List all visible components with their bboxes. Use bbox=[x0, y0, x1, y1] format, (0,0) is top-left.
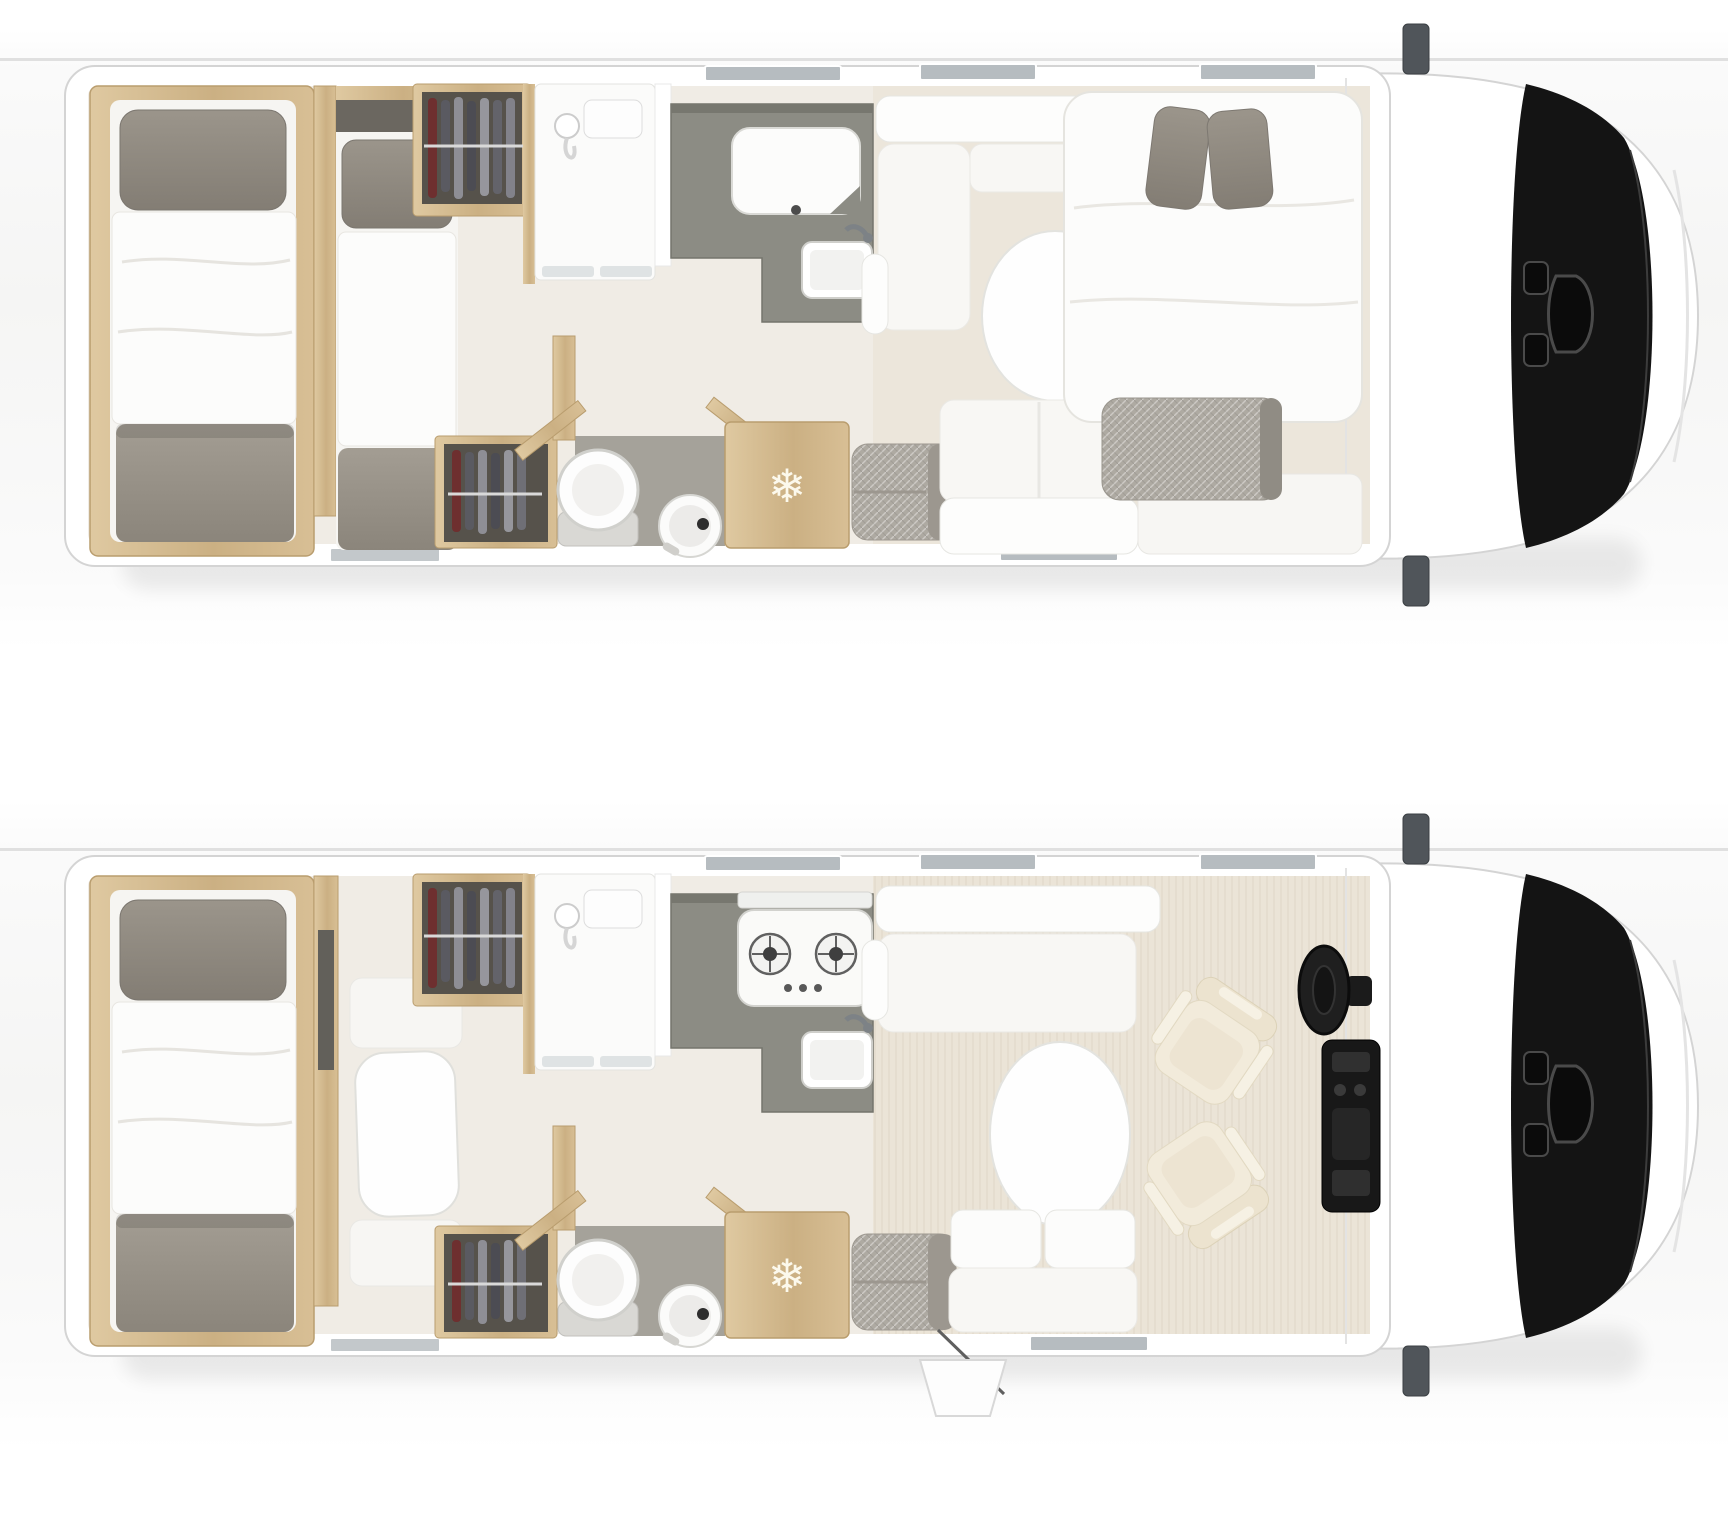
entrance-seat bbox=[852, 1234, 956, 1330]
worktop-cover bbox=[732, 128, 860, 214]
sofa-seat bbox=[949, 1268, 1137, 1332]
washbasin-tap bbox=[697, 1308, 709, 1320]
pillow bbox=[120, 900, 286, 1000]
pillow-left bbox=[1144, 105, 1212, 211]
floorplan-upper: ❄ bbox=[62, 0, 1702, 650]
shower-door-right bbox=[600, 1056, 652, 1067]
foot-blanket-fold bbox=[116, 424, 294, 438]
shower-head-icon bbox=[555, 904, 579, 928]
shower-door-left bbox=[542, 1056, 594, 1067]
wardrobe-top bbox=[413, 874, 531, 1006]
foot-blanket-fold bbox=[116, 1214, 294, 1228]
front-window-top bbox=[1200, 854, 1316, 870]
kitchen-backsplash bbox=[671, 104, 873, 113]
shower-door-left bbox=[542, 266, 594, 277]
toilet-seat bbox=[572, 1254, 624, 1306]
partition-mirror-panel bbox=[318, 930, 334, 1070]
bench-seat bbox=[878, 934, 1136, 1032]
hob-burner-left bbox=[750, 934, 790, 974]
bench-armrest bbox=[862, 254, 888, 334]
shower-wall-white bbox=[655, 84, 671, 266]
sofa-back-cushion-left bbox=[951, 1210, 1041, 1268]
drop-down-bed bbox=[1064, 92, 1362, 554]
kitchen-faucet-base bbox=[863, 1023, 873, 1033]
shower-door-right bbox=[600, 266, 652, 277]
worktop-hinge bbox=[791, 205, 801, 215]
duvet bbox=[112, 1002, 296, 1214]
side-mirror-bottom bbox=[1403, 556, 1429, 606]
bench-back bbox=[876, 886, 1160, 932]
clothes-items bbox=[428, 887, 515, 989]
hob-lid bbox=[738, 892, 872, 908]
shower-basin bbox=[584, 890, 642, 928]
pillow bbox=[120, 110, 286, 210]
floorplan-lower: ❄ bbox=[62, 790, 1702, 1450]
shower-room bbox=[523, 84, 671, 284]
kitchen-sink-bowl bbox=[810, 250, 864, 290]
dinette-table bbox=[354, 1050, 460, 1217]
lounge-window-top bbox=[920, 64, 1036, 80]
wardrobe-top bbox=[413, 84, 531, 216]
sofa-back bbox=[940, 498, 1138, 554]
wardrobe-bottom bbox=[435, 1226, 557, 1338]
fridge: ❄ bbox=[725, 422, 849, 548]
bench-seat-left bbox=[878, 144, 970, 330]
foot-blanket-roll bbox=[1260, 398, 1282, 500]
shower-wall-wood bbox=[523, 874, 535, 1074]
floorplan-lower-svg: ❄ bbox=[62, 790, 1702, 1450]
rear-bed bbox=[90, 876, 314, 1346]
kitchen-window bbox=[705, 856, 841, 871]
dashboard bbox=[1322, 1040, 1380, 1212]
toilet-seat bbox=[572, 464, 624, 516]
foot-blanket bbox=[116, 1214, 294, 1332]
side-mirror-top bbox=[1403, 24, 1429, 74]
foot-blanket bbox=[1102, 398, 1280, 500]
front-window-top bbox=[1200, 64, 1316, 80]
steering-wheel-hub bbox=[1313, 966, 1335, 1014]
kitchen-window bbox=[705, 66, 841, 81]
fridge: ❄ bbox=[725, 1212, 849, 1338]
hob-burner-right bbox=[816, 934, 856, 974]
hob-knobs bbox=[784, 984, 822, 992]
foot-blanket bbox=[116, 424, 294, 542]
duvet bbox=[112, 212, 296, 424]
clothes-items bbox=[428, 97, 515, 199]
pillow-right bbox=[1206, 108, 1274, 211]
shower-head-icon bbox=[555, 114, 579, 138]
bed-partition-wood bbox=[314, 86, 336, 516]
rear-window-bottom bbox=[330, 1338, 440, 1352]
snowflake-icon: ❄ bbox=[768, 459, 807, 513]
side-mirror-top bbox=[1403, 814, 1429, 864]
rear-bed-left bbox=[90, 86, 314, 556]
kitchen-faucet-base bbox=[863, 233, 873, 243]
shower-wall-wood bbox=[523, 84, 535, 284]
snowflake-icon: ❄ bbox=[768, 1249, 807, 1303]
oval-table bbox=[990, 1042, 1130, 1226]
floorplans-canvas: ❄ bbox=[0, 0, 1728, 1520]
entry-step bbox=[920, 1360, 1006, 1416]
shower-basin bbox=[584, 100, 642, 138]
kitchen-sink-bowl bbox=[810, 1040, 864, 1080]
duvet bbox=[338, 232, 456, 446]
lounge-window-top bbox=[920, 854, 1036, 870]
side-mirror-bottom bbox=[1403, 1346, 1429, 1396]
lounge-window-bottom bbox=[1030, 1336, 1148, 1351]
shower-wall-white bbox=[655, 874, 671, 1056]
rear-window-bottom bbox=[330, 548, 440, 562]
floorplan-upper-svg: ❄ bbox=[62, 0, 1702, 650]
wardrobe-bottom bbox=[435, 436, 557, 548]
washbasin-tap bbox=[697, 518, 709, 530]
bench-armrest bbox=[862, 940, 888, 1020]
shower-room bbox=[523, 874, 671, 1074]
sofa-back-cushion-right bbox=[1045, 1210, 1135, 1268]
